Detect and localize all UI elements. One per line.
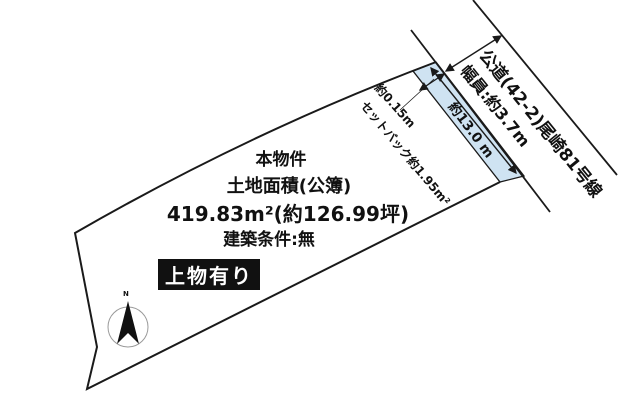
compass: [108, 301, 148, 347]
land-area-title: 土地面積(公簿): [189, 175, 389, 199]
building-condition: 建築条件:無: [199, 229, 339, 251]
compass-north-label: N: [123, 290, 129, 298]
structure-badge: 上物有り: [158, 259, 260, 290]
north-arrow-icon: [117, 301, 139, 344]
land-area-value: 419.83m²(約126.99坪): [168, 201, 408, 227]
property-title: 本物件: [221, 149, 341, 171]
land-plot-diagram: N 本物件 土地面積(公簿) 419.83m²(約126.99坪) 建築条件:無…: [0, 0, 640, 402]
